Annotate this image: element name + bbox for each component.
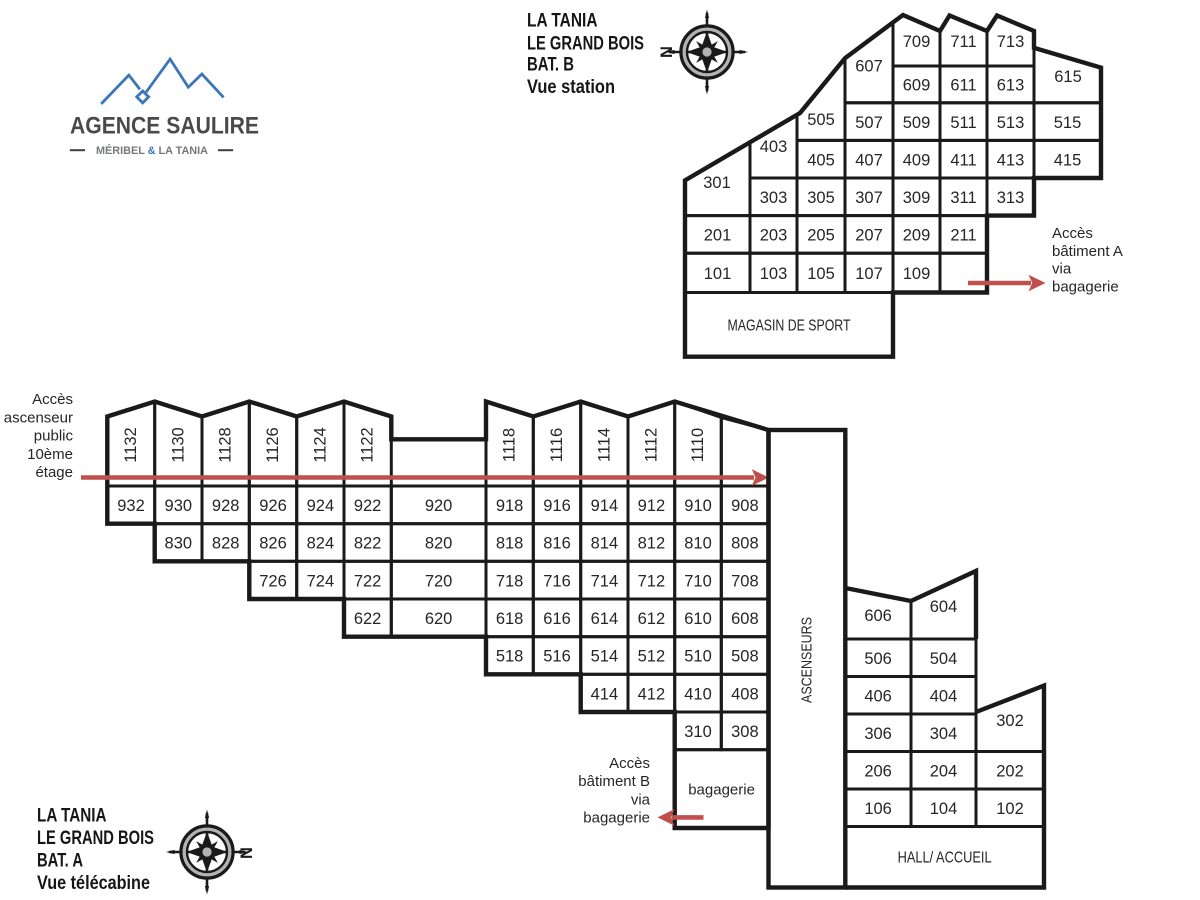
svg-text:930: 930: [165, 497, 193, 515]
svg-text:104: 104: [930, 800, 958, 818]
svg-text:206: 206: [864, 763, 892, 781]
svg-text:BAT. B: BAT. B: [527, 54, 574, 76]
svg-text:MÉRIBEL & LA TANIA: MÉRIBEL & LA TANIA: [96, 144, 208, 157]
svg-text:726: 726: [259, 572, 287, 590]
svg-text:204: 204: [930, 763, 958, 781]
svg-text:511: 511: [950, 114, 976, 132]
svg-text:711: 711: [950, 33, 976, 51]
svg-text:613: 613: [997, 77, 1025, 95]
svg-text:814: 814: [591, 535, 619, 553]
svg-text:205: 205: [807, 227, 835, 245]
svg-text:618: 618: [496, 610, 524, 628]
svg-text:505: 505: [807, 111, 835, 129]
svg-text:309: 309: [903, 189, 931, 207]
svg-text:LA TANIA: LA TANIA: [527, 10, 598, 32]
svg-text:716: 716: [543, 572, 571, 590]
svg-text:910: 910: [684, 497, 712, 515]
svg-text:514: 514: [591, 648, 619, 666]
svg-text:604: 604: [930, 598, 958, 616]
svg-text:606: 606: [864, 607, 892, 625]
svg-text:515: 515: [1054, 114, 1082, 132]
svg-text:1118: 1118: [501, 428, 519, 462]
svg-text:bagagerie: bagagerie: [688, 782, 755, 799]
svg-text:202: 202: [996, 763, 1024, 781]
svg-text:1114: 1114: [595, 428, 613, 462]
svg-text:710: 710: [684, 572, 712, 590]
svg-text:924: 924: [307, 497, 335, 515]
svg-text:311: 311: [950, 189, 976, 207]
svg-text:1112: 1112: [642, 428, 660, 462]
svg-text:301: 301: [703, 174, 731, 192]
svg-text:611: 611: [950, 77, 976, 95]
svg-text:407: 407: [855, 151, 883, 169]
svg-text:207: 207: [855, 227, 883, 245]
svg-text:830: 830: [165, 535, 193, 553]
svg-text:413: 413: [997, 151, 1025, 169]
svg-text:412: 412: [638, 685, 666, 703]
svg-text:LA TANIA: LA TANIA: [37, 805, 107, 827]
svg-text:302: 302: [996, 712, 1024, 730]
svg-text:HALL/ ACCUEIL: HALL/ ACCUEIL: [898, 850, 992, 867]
svg-text:826: 826: [259, 535, 287, 553]
svg-text:828: 828: [212, 535, 240, 553]
svg-text:305: 305: [807, 189, 835, 207]
svg-text:LE GRAND BOIS: LE GRAND BOIS: [527, 33, 644, 55]
svg-text:812: 812: [638, 535, 666, 553]
svg-text:722: 722: [354, 572, 382, 590]
svg-text:609: 609: [903, 77, 931, 95]
svg-text:201: 201: [704, 227, 732, 245]
svg-text:824: 824: [307, 535, 335, 553]
svg-text:932: 932: [117, 497, 145, 515]
svg-text:107: 107: [855, 265, 883, 283]
svg-text:209: 209: [903, 227, 931, 245]
svg-text:1132: 1132: [122, 427, 140, 462]
svg-text:203: 203: [760, 227, 788, 245]
svg-text:508: 508: [731, 648, 759, 666]
svg-text:306: 306: [864, 725, 892, 743]
svg-text:1110: 1110: [689, 428, 707, 462]
svg-text:614: 614: [591, 610, 619, 628]
svg-text:409: 409: [903, 151, 931, 169]
svg-text:307: 307: [855, 189, 883, 207]
svg-text:714: 714: [591, 572, 619, 590]
svg-text:310: 310: [684, 723, 712, 741]
svg-text:622: 622: [354, 610, 382, 628]
svg-text:303: 303: [760, 189, 788, 207]
svg-text:106: 106: [864, 800, 892, 818]
svg-text:820: 820: [425, 535, 453, 553]
svg-text:920: 920: [425, 497, 453, 515]
svg-text:403: 403: [760, 138, 788, 156]
svg-text:615: 615: [1054, 68, 1082, 86]
svg-text:ASCENSEURS: ASCENSEURS: [798, 617, 815, 703]
svg-text:720: 720: [425, 572, 453, 590]
svg-text:414: 414: [591, 685, 619, 703]
svg-text:808: 808: [731, 535, 759, 553]
svg-text:101: 101: [704, 265, 732, 283]
svg-text:506: 506: [864, 650, 892, 668]
svg-text:507: 507: [855, 114, 883, 132]
svg-text:908: 908: [731, 497, 759, 515]
svg-text:620: 620: [425, 610, 453, 628]
svg-text:Vue télécabine: Vue télécabine: [37, 872, 150, 894]
svg-text:304: 304: [930, 725, 958, 743]
svg-text:810: 810: [684, 535, 712, 553]
svg-text:1116: 1116: [548, 428, 566, 462]
svg-text:513: 513: [997, 114, 1025, 132]
svg-text:918: 918: [496, 497, 524, 515]
svg-text:405: 405: [807, 151, 835, 169]
svg-text:LE GRAND BOIS: LE GRAND BOIS: [37, 827, 154, 849]
svg-text:916: 916: [543, 497, 571, 515]
svg-text:408: 408: [731, 685, 759, 703]
svg-text:713: 713: [997, 33, 1025, 51]
svg-text:109: 109: [903, 265, 931, 283]
svg-text:718: 718: [496, 572, 524, 590]
svg-text:308: 308: [731, 723, 759, 741]
svg-text:724: 724: [307, 572, 335, 590]
svg-text:914: 914: [591, 497, 619, 515]
svg-text:MAGASIN DE SPORT: MAGASIN DE SPORT: [728, 317, 851, 334]
svg-text:926: 926: [259, 497, 287, 515]
svg-text:1130: 1130: [169, 427, 187, 462]
svg-text:512: 512: [638, 648, 666, 666]
svg-text:510: 510: [684, 648, 712, 666]
svg-text:1128: 1128: [217, 427, 235, 462]
svg-text:105: 105: [807, 265, 835, 283]
svg-text:504: 504: [930, 650, 958, 668]
svg-text:N: N: [238, 847, 256, 859]
svg-text:103: 103: [760, 265, 788, 283]
svg-text:608: 608: [731, 610, 759, 628]
svg-text:509: 509: [903, 114, 931, 132]
svg-text:AGENCE SAULIRE: AGENCE SAULIRE: [70, 113, 259, 140]
svg-text:415: 415: [1054, 151, 1082, 169]
svg-text:Vue station: Vue station: [527, 76, 615, 98]
svg-text:616: 616: [543, 610, 571, 628]
svg-text:816: 816: [543, 535, 571, 553]
svg-text:N: N: [658, 46, 676, 58]
svg-text:818: 818: [496, 535, 524, 553]
svg-text:822: 822: [354, 535, 382, 553]
svg-text:708: 708: [731, 572, 759, 590]
svg-text:313: 313: [997, 189, 1025, 207]
svg-text:211: 211: [950, 227, 976, 245]
svg-text:1126: 1126: [264, 427, 282, 462]
svg-text:1124: 1124: [311, 427, 329, 462]
svg-text:404: 404: [930, 688, 958, 706]
svg-text:102: 102: [996, 800, 1024, 818]
svg-text:516: 516: [543, 648, 571, 666]
svg-text:BAT. A: BAT. A: [37, 850, 83, 872]
svg-text:709: 709: [903, 33, 931, 51]
svg-text:928: 928: [212, 497, 240, 515]
svg-text:410: 410: [684, 685, 712, 703]
svg-text:912: 912: [638, 497, 666, 515]
svg-text:610: 610: [684, 610, 712, 628]
svg-text:922: 922: [354, 497, 382, 515]
svg-text:712: 712: [638, 572, 666, 590]
svg-text:406: 406: [864, 688, 892, 706]
svg-text:518: 518: [496, 648, 524, 666]
svg-text:612: 612: [638, 610, 666, 628]
svg-text:1122: 1122: [359, 427, 377, 462]
svg-text:411: 411: [950, 151, 976, 169]
svg-text:607: 607: [855, 58, 883, 76]
